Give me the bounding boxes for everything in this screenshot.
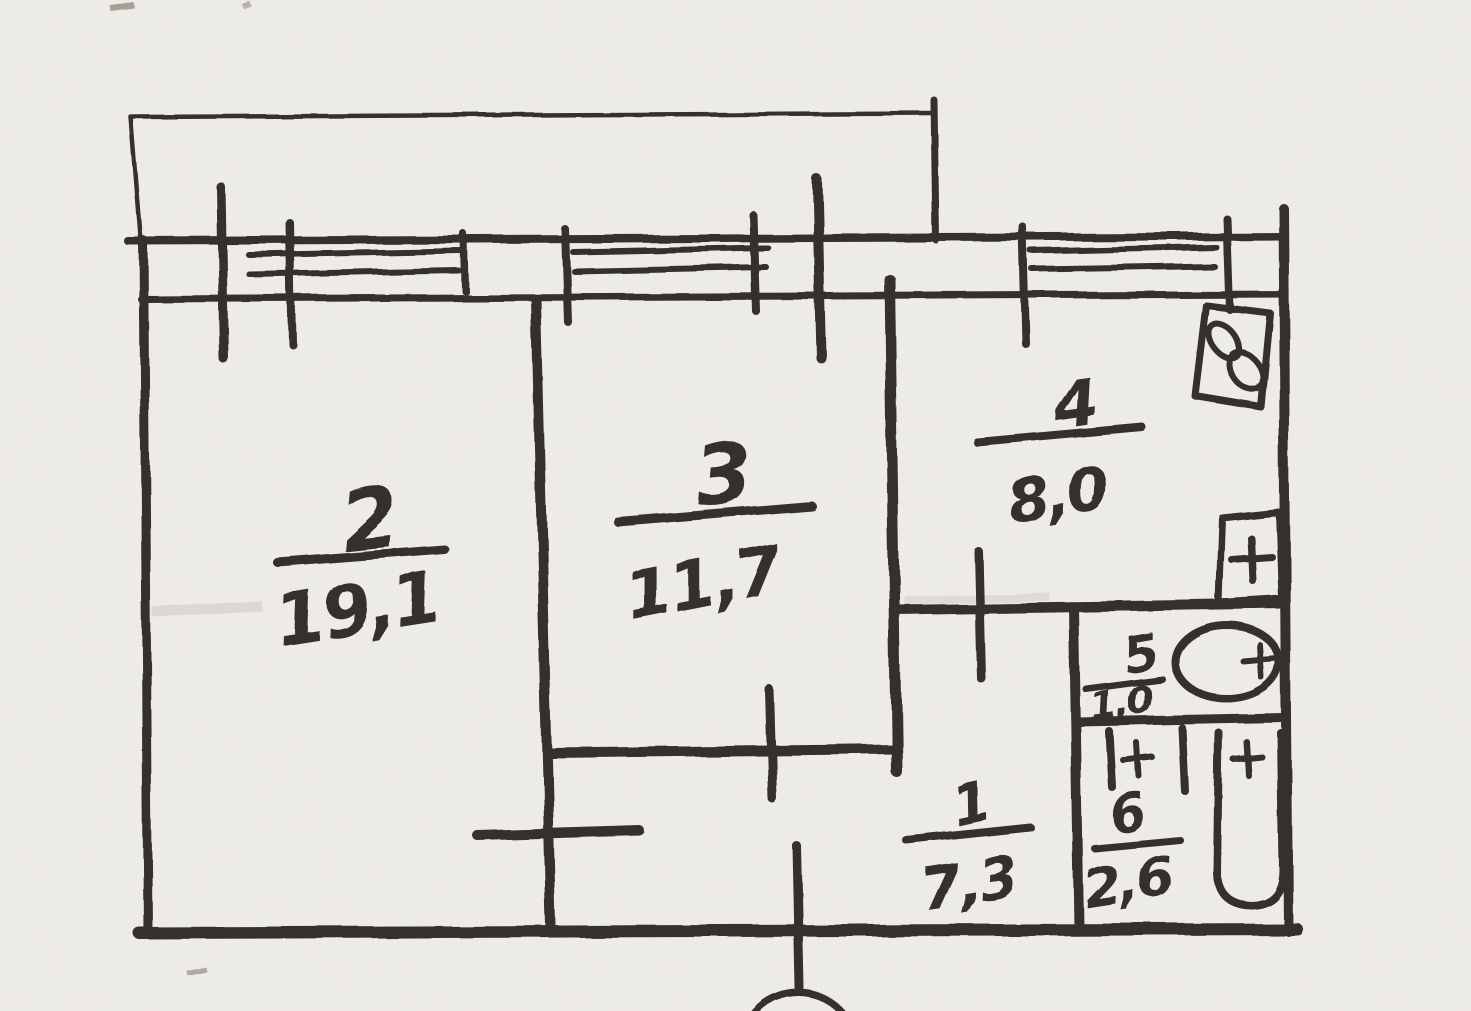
- floor-plan-canvas: 2 19,1 3 11,7 4 8,0 1 7,3 5 1,0 6 2,6: [0, 0, 1471, 1011]
- plus-mark: [1247, 742, 1249, 776]
- door-tick-room3: [770, 690, 773, 799]
- window-glazing-line: [1032, 266, 1214, 269]
- window-tick: [290, 223, 292, 344]
- plus-mark: [1137, 743, 1139, 776]
- window-glazing-line: [1031, 247, 1216, 251]
- window-tick: [1226, 218, 1229, 309]
- pencil-smudge: [110, 5, 134, 8]
- wall-bottom-of-room3: [551, 749, 895, 753]
- window-tick: [817, 179, 821, 358]
- door-tick-room6: [1182, 728, 1185, 791]
- window-glazing-line: [249, 251, 460, 255]
- window-tick: [1023, 227, 1026, 344]
- window-tick: [753, 215, 756, 311]
- pencil-smudge: [242, 3, 250, 6]
- wall-right-of-room3: [890, 280, 897, 772]
- top-wall-outer: [128, 236, 1284, 241]
- plus-mark: [1251, 538, 1253, 581]
- room-area: 1,0: [1088, 677, 1156, 729]
- window-glazing-line: [573, 248, 768, 252]
- top-wall-inner: [141, 294, 1284, 299]
- door-tick-room6: [1109, 731, 1112, 787]
- bottom-wall: [139, 929, 1297, 933]
- wall-left-of-room5-room6: [1074, 608, 1079, 929]
- window-tick: [464, 234, 465, 291]
- pencil-smudge: [152, 606, 262, 612]
- window-glazing-line: [250, 271, 459, 275]
- door-tick-room2: [478, 831, 640, 836]
- window-tick: [565, 229, 568, 322]
- entrance-stem: [797, 846, 800, 988]
- scanned-floor-plan: 2 19,1 3 11,7 4 8,0 1 7,3 5 1,0 6 2,6: [0, 0, 1471, 1011]
- window-glazing-line: [574, 267, 766, 271]
- balcony-right-line: [934, 100, 936, 240]
- plus-mark: [1259, 644, 1261, 677]
- window-tick: [221, 187, 224, 359]
- door-tick-kitchen: [978, 551, 981, 678]
- left-wall: [143, 240, 148, 933]
